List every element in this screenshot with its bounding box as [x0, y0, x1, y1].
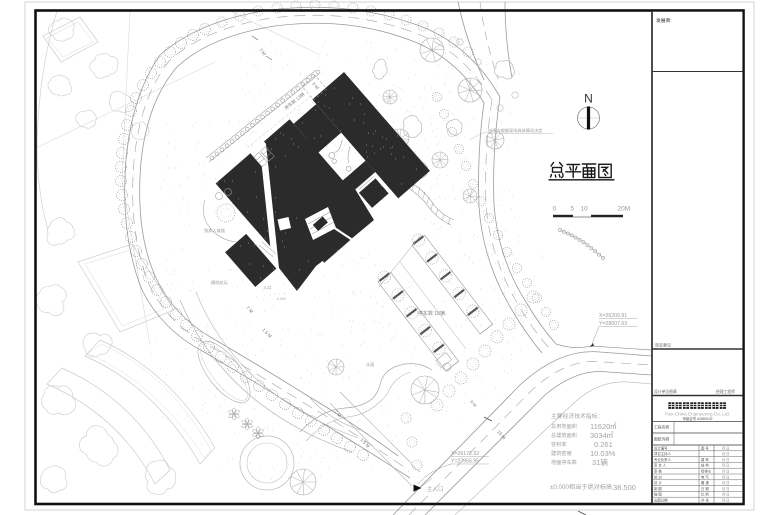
svg-text:总用地面积: 总用地面积 — [551, 422, 577, 430]
svg-text:描 图: 描 图 — [654, 492, 662, 497]
svg-text:月 日: 月 日 — [722, 464, 729, 468]
svg-text:工程名称: 工程名称 — [654, 425, 669, 430]
svg-text:月 日: 月 日 — [722, 446, 729, 450]
svg-text:停车数 18辆: 停车数 18辆 — [418, 310, 445, 317]
svg-text:5: 5 — [571, 206, 575, 213]
svg-text:由甲方根据现场具体情况决定: 由甲方根据现场具体情况决定 — [488, 127, 542, 134]
svg-text:X=26209.91: X=26209.91 — [599, 313, 627, 319]
svg-text:设 计: 设 计 — [654, 480, 662, 485]
svg-text:校 对: 校 对 — [654, 474, 662, 479]
svg-text:N: N — [584, 92, 593, 106]
svg-text:入口: 入口 — [263, 285, 271, 290]
svg-text:10: 10 — [581, 206, 589, 213]
svg-text:图纸内容: 图纸内容 — [654, 437, 669, 442]
svg-text:设计编号: 设计编号 — [654, 445, 668, 450]
svg-text:月 日: 月 日 — [722, 475, 729, 479]
svg-text:月 日: 月 日 — [722, 487, 729, 491]
svg-text:给排水: 给排水 — [701, 469, 712, 474]
svg-text:主入口: 主入口 — [427, 485, 444, 493]
svg-text:审 核: 审 核 — [654, 469, 662, 474]
svg-text:Pan-China Engineering Co. L: Pan-China Engineering Co. Ltd. — [665, 412, 730, 417]
svg-text:电 气: 电 气 — [701, 474, 709, 479]
svg-text:模纹花坛: 模纹花坛 — [211, 279, 228, 286]
svg-text:容积率: 容积率 — [551, 440, 567, 448]
svg-text:经理工程师: 经理工程师 — [716, 389, 735, 394]
svg-text:Y=28007.63: Y=28007.63 — [599, 321, 627, 327]
svg-text:图 号: 图 号 — [701, 445, 709, 450]
svg-text:比 例: 比 例 — [701, 492, 709, 497]
svg-text:审 定 人: 审 定 人 — [654, 463, 667, 468]
svg-text:20M: 20M — [618, 206, 631, 213]
svg-text:10.03%: 10.03% — [590, 449, 616, 458]
svg-text:总建筑面积: 总建筑面积 — [551, 431, 577, 439]
svg-text:制 图: 制 图 — [654, 486, 662, 491]
svg-text:月 日: 月 日 — [722, 458, 729, 462]
svg-text:审定意见: 审定意见 — [655, 342, 671, 348]
svg-text:X=26172.92: X=26172.92 — [451, 451, 479, 457]
svg-text:建 筑: 建 筑 — [701, 457, 709, 462]
svg-text:月 日: 月 日 — [722, 470, 729, 474]
svg-text:0.261: 0.261 — [594, 440, 613, 449]
svg-text:发展商:: 发展商: — [656, 17, 672, 24]
svg-text:月 日: 月 日 — [722, 493, 729, 497]
svg-text:结 构: 结 构 — [701, 463, 709, 468]
svg-text:38.500: 38.500 — [613, 483, 636, 492]
svg-text:±0.000相当于绝对标高: ±0.000相当于绝对标高 — [550, 483, 612, 491]
svg-text:共 张: 共 张 — [701, 498, 709, 503]
svg-text:月 日: 月 日 — [722, 452, 729, 456]
svg-text:日 期: 日 期 — [701, 486, 709, 491]
svg-text:3034m: 3034m — [590, 431, 613, 440]
svg-text:月 日: 月 日 — [722, 481, 729, 485]
svg-text:设计单位图章: 设计单位图章 — [654, 389, 677, 394]
svg-text:Y=27955.95: Y=27955.95 — [451, 459, 479, 465]
svg-text:出图日期: 出图日期 — [654, 498, 668, 503]
svg-text:甲级证号 A2880102: 甲级证号 A2880102 — [683, 416, 713, 421]
svg-text:建筑密度: 建筑密度 — [551, 449, 572, 457]
svg-text:项目主持人: 项目主持人 — [654, 451, 672, 456]
svg-text:31辆: 31辆 — [592, 457, 608, 467]
svg-text:0: 0 — [553, 206, 557, 213]
svg-text:主要经济技术指标：: 主要经济技术指标： — [551, 412, 603, 420]
svg-text:水面: 水面 — [366, 361, 374, 368]
svg-text:地面停车数: 地面停车数 — [551, 458, 578, 466]
svg-text:专业负责人: 专业负责人 — [654, 457, 672, 462]
svg-text:暖 通: 暖 通 — [701, 480, 709, 485]
svg-text:-0.600: -0.600 — [276, 297, 286, 301]
svg-text:月 日: 月 日 — [722, 499, 729, 503]
svg-text:残疾人坡道: 残疾人坡道 — [204, 227, 226, 234]
